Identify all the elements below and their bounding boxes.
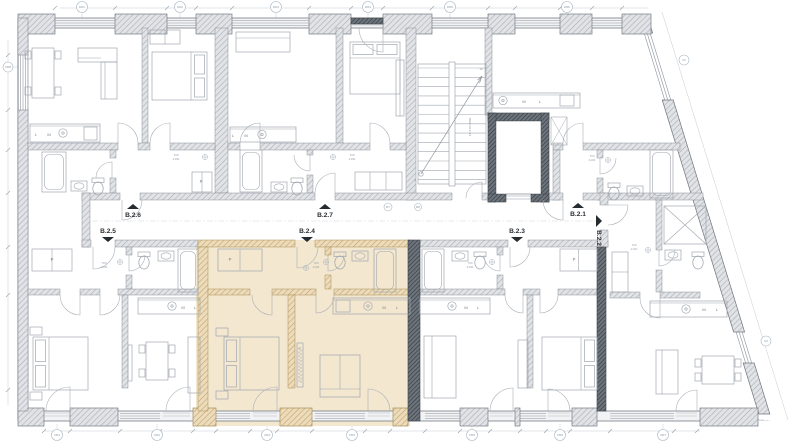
- window-tag: O01: [52, 430, 63, 441]
- kitchen-letter-m: M: [702, 307, 705, 312]
- wall-pier: [515, 408, 520, 426]
- svg-text:V1: V1: [682, 58, 686, 62]
- interior-wall: [523, 289, 540, 295]
- svg-text:O02: O02: [154, 433, 160, 437]
- interior-wall: [406, 28, 416, 200]
- svg-text:D03: D03: [273, 5, 279, 9]
- interior-wall: [597, 150, 603, 158]
- floor-plan-page: B.2.6 B.2.7 B.2.1 B.2.2 B.2.5 B.2.4 B.2.…: [0, 0, 800, 441]
- wall-pier: [18, 110, 28, 411]
- interior-wall: [553, 150, 560, 200]
- interior-wall: [138, 143, 150, 150]
- elevator-wall: [541, 113, 549, 202]
- interior-wall: [80, 289, 100, 295]
- svg-text:O01: O01: [54, 433, 60, 437]
- window-tag: D06: [562, 2, 573, 13]
- wall-pier: [18, 18, 28, 55]
- closet-letter: P: [51, 257, 54, 262]
- svg-text:2100: 2100: [313, 265, 320, 269]
- elevator-wall: [488, 113, 549, 121]
- wall-pier: [309, 14, 351, 34]
- wall-pier: [572, 408, 597, 426]
- window-tag: D05: [445, 2, 456, 13]
- svg-text:D01: D01: [79, 5, 85, 9]
- wall-pier: [115, 14, 167, 34]
- window-tag: D04: [363, 2, 374, 13]
- window-tag: O07: [658, 430, 669, 441]
- interior-wall: [558, 289, 597, 295]
- kitchen-letter-m: M: [244, 133, 247, 138]
- floor-plan-svg: B.2.6 B.2.7 B.2.1 B.2.2 B.2.5 B.2.4 B.2.…: [0, 0, 800, 441]
- interior-wall: [336, 28, 343, 143]
- unit-label: B.2.6: [125, 212, 141, 219]
- unit-label: B.2.4: [299, 228, 315, 235]
- svg-text:2100: 2100: [101, 265, 108, 269]
- interior-wall: [610, 292, 640, 298]
- svg-text:O03: O03: [264, 433, 270, 437]
- window-tag: V2: [761, 336, 771, 346]
- window-tag: O05: [467, 430, 478, 441]
- interior-wall-highlight: [325, 247, 331, 255]
- interior-wall: [110, 150, 116, 158]
- interior-wall: [82, 193, 90, 247]
- wall-pier-highlight: [280, 408, 312, 426]
- corridor-tag: R7: [384, 203, 392, 211]
- svg-text:R7: R7: [386, 205, 390, 209]
- dark-wall: [408, 240, 420, 421]
- svg-text:2100: 2100: [467, 265, 474, 269]
- unit-label: B.2.7: [317, 212, 333, 219]
- interior-wall: [122, 295, 128, 388]
- wall-pier: [700, 408, 758, 426]
- stair-number-top: 10: [479, 67, 483, 71]
- stair-formula: 16×175=2800: [468, 117, 472, 136]
- svg-text:O04: O04: [349, 433, 355, 437]
- window-tag: D02: [175, 2, 186, 13]
- svg-text:2100: 2100: [631, 247, 638, 251]
- interior-wall: [126, 247, 132, 255]
- interior-wall: [82, 240, 91, 247]
- svg-text:D05: D05: [447, 5, 453, 9]
- wall-pier: [560, 14, 592, 34]
- interior-wall-highlight: [315, 240, 410, 247]
- kitchen-letter-m: M: [382, 305, 385, 310]
- unit-label: B.2.3: [509, 228, 525, 235]
- closet-letter: P: [229, 257, 232, 262]
- interior-wall: [656, 270, 662, 292]
- corridor-tag: R8: [415, 204, 422, 211]
- interior-wall: [307, 175, 313, 193]
- interior-wall-highlight: [198, 240, 295, 247]
- kitchen-letter-m: M: [522, 99, 525, 104]
- svg-text:O08: O08: [5, 65, 11, 69]
- interior-wall: [260, 143, 370, 150]
- window-tag: O02: [152, 430, 163, 441]
- window-tag: V1: [679, 55, 689, 65]
- kitchen-letter-m: M: [464, 305, 467, 310]
- interior-wall: [656, 200, 662, 250]
- interior-wall: [600, 193, 608, 205]
- dark-wall: [351, 18, 383, 24]
- wall-pier: [460, 408, 488, 426]
- interior-wall: [583, 143, 680, 150]
- svg-text:O05: O05: [469, 433, 475, 437]
- interior-wall-highlight: [325, 275, 331, 289]
- svg-text:2100: 2100: [589, 158, 596, 162]
- interior-wall: [170, 143, 215, 150]
- closet-letter: P: [200, 179, 203, 184]
- unit-label: B.2.2: [595, 230, 602, 246]
- elevator-wall: [488, 194, 506, 202]
- interior-wall-highlight: [198, 247, 208, 411]
- interior-wall: [126, 275, 132, 289]
- svg-text:2100: 2100: [173, 157, 180, 161]
- svg-text:R8: R8: [416, 205, 420, 209]
- unit-label: B.2.5: [100, 228, 116, 235]
- svg-text:O07: O07: [660, 433, 666, 437]
- window-tag: D03: [271, 2, 282, 13]
- wall-pier: [70, 408, 118, 426]
- svg-text:D06: D06: [564, 5, 570, 9]
- dark-wall: [597, 247, 606, 411]
- interior-wall: [497, 275, 503, 289]
- window-tag: O08: [3, 62, 13, 72]
- interior-wall: [553, 143, 563, 150]
- wall-pier: [622, 14, 651, 34]
- svg-text:2100: 2100: [349, 157, 356, 161]
- elevator-cab: [496, 121, 541, 194]
- kitchen-letter-m: M: [181, 305, 184, 310]
- interior-wall: [420, 240, 508, 247]
- interior-wall: [390, 143, 406, 150]
- interior-wall: [660, 292, 700, 298]
- unit-label: B.2.1: [570, 211, 586, 218]
- interior-wall: [142, 28, 148, 143]
- svg-text:D02: D02: [177, 5, 183, 9]
- wall-pier-highlight: [393, 408, 408, 426]
- interior-wall: [215, 28, 228, 193]
- interior-wall-highlight: [272, 289, 316, 295]
- interior-wall: [228, 143, 240, 150]
- interior-wall: [497, 247, 503, 255]
- interior-wall: [28, 289, 60, 295]
- svg-text:V2: V2: [764, 339, 768, 343]
- elevator-wall: [488, 113, 496, 202]
- interior-wall-highlight: [208, 289, 250, 295]
- interior-wall: [115, 240, 198, 247]
- svg-text:O06: O06: [557, 433, 563, 437]
- window-tag: O03: [262, 430, 273, 441]
- interior-wall: [140, 193, 315, 200]
- interior-wall: [307, 150, 313, 155]
- closet-letter: P: [573, 257, 576, 262]
- elevator-wall: [531, 194, 549, 202]
- window-tag: O04: [347, 430, 358, 441]
- kitchen-letter-m: M: [47, 132, 50, 137]
- window-tag: D01: [77, 2, 88, 13]
- interior-wall: [335, 193, 452, 200]
- interior-wall-highlight: [288, 295, 295, 388]
- interior-wall: [110, 178, 116, 193]
- interior-wall-highlight: [334, 289, 408, 295]
- svg-text:D04: D04: [365, 5, 371, 9]
- window-tag: O06: [555, 430, 566, 441]
- interior-wall: [28, 143, 118, 150]
